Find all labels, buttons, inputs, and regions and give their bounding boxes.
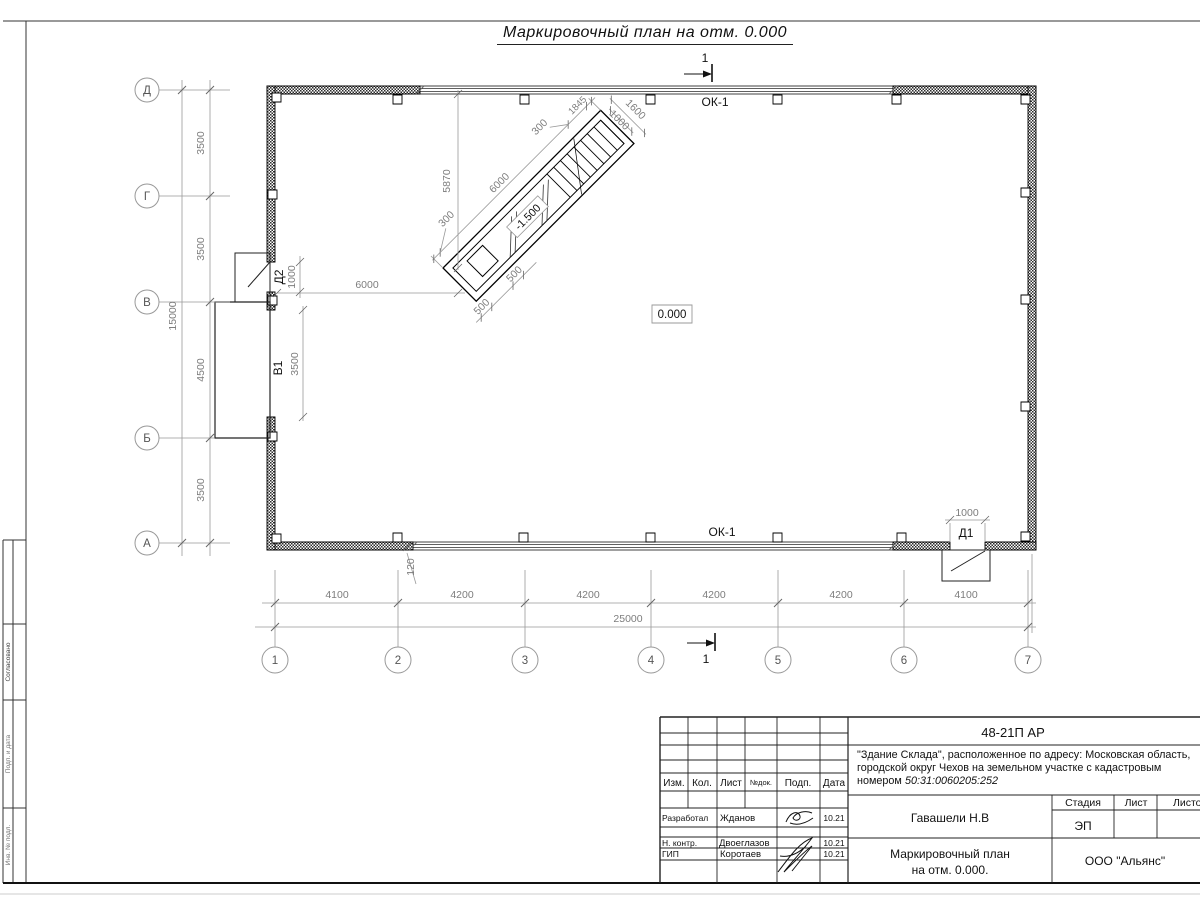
dim-left-4: 3500	[195, 478, 207, 502]
dim-d2-width: 1000	[286, 265, 298, 289]
window-label-bottom: ОК-1	[709, 525, 736, 539]
dim-left-total: 15000	[167, 301, 179, 330]
col-header-data: Дата	[823, 778, 846, 789]
col-header-podp: Подп.	[785, 778, 812, 789]
ramp-locating-dims	[273, 90, 465, 297]
porch-d2	[235, 253, 270, 302]
dim-ramp-from-wall: 5870	[441, 169, 453, 193]
row2-name: Двоеглазов	[719, 838, 770, 849]
left-axes	[135, 78, 230, 556]
row2-role: Н. контр.	[662, 838, 697, 848]
axis-label-d: Д	[143, 85, 151, 97]
door-label-d1: Д1	[959, 526, 974, 540]
titleblock-chief: Гавашели Н.В	[911, 811, 989, 825]
porch-d1	[942, 550, 990, 581]
axis-label-6: 6	[901, 655, 907, 667]
dim-ramp-end-top: 300	[529, 117, 550, 138]
axis-label-7: 7	[1025, 655, 1031, 667]
dim-left-1: 3500	[195, 131, 207, 155]
dim-v1-width: 3500	[289, 352, 301, 376]
door-label-d2: Д2	[272, 269, 286, 284]
frame-side-labels: Согласовано Подп. и дата Инв. № подл.	[5, 642, 12, 865]
row2-date: 10.21	[823, 838, 845, 848]
row3-name: Коротаев	[720, 849, 761, 860]
project-cadastral-number: 50:31:0060205:252	[905, 775, 998, 787]
axis-label-v: В	[143, 297, 151, 309]
dim-bottom-total: 25000	[613, 613, 642, 625]
elevation-value: 0.000	[658, 309, 687, 321]
dim-ramp-stair-len: 1845	[566, 94, 589, 117]
dim-bottom-1: 4100	[325, 589, 349, 601]
axis-label-4: 4	[648, 655, 655, 667]
plan-drawing: Согласовано Подп. и дата Инв. № подл.	[0, 0, 1200, 900]
row1-date: 10.21	[823, 813, 845, 823]
section-mark-bottom: 1	[687, 633, 715, 666]
window-label-top: ОК-1	[702, 95, 729, 109]
doc-name-line1: Маркировочный план	[890, 847, 1010, 861]
frame-label-podp-data: Подп. и дата	[5, 734, 12, 773]
axis-label-5: 5	[775, 655, 781, 667]
axis-label-g: Г	[144, 191, 151, 203]
col-header-izm: Изм.	[663, 778, 684, 789]
dim-d1-width: 1000	[955, 507, 979, 519]
dim-left-2: 3500	[195, 237, 207, 261]
section-number-bottom: 1	[703, 652, 710, 666]
frame-label-inv-podl: Инв. № подл.	[5, 825, 12, 866]
col-header-kol: Кол.	[692, 778, 712, 789]
frame-label-soglasovano: Согласовано	[5, 642, 12, 681]
dim-wall-step: 120	[405, 558, 417, 576]
row1-name: Жданов	[720, 813, 755, 824]
window-band-bottom	[413, 542, 893, 550]
dim-ramp-end-bottom: 300	[436, 209, 457, 230]
dim-bottom-4: 4200	[702, 589, 726, 601]
row3-role: ГИП	[662, 849, 679, 859]
drawing-title-text: Маркировочный план на отм. 0.000	[497, 24, 793, 45]
porch-v1	[215, 302, 270, 438]
window-band-top	[420, 86, 893, 94]
drawing-title: Маркировочный план на отм. 0.000	[430, 24, 860, 45]
section-mark-top: 1	[684, 51, 712, 82]
door-d1-leaf	[951, 551, 985, 571]
doc-name-line2: на отм. 0.000.	[912, 863, 989, 877]
dim-bottom-2: 4200	[450, 589, 474, 601]
project-desc-line1: "Здание Склада", расположенное по адресу…	[857, 749, 1190, 761]
dim-ramp-length: 6000	[487, 171, 512, 196]
dim-bottom-5: 4200	[829, 589, 853, 601]
door-d2-leaf	[248, 262, 270, 287]
dim-bottom-3: 4200	[576, 589, 600, 601]
axis-label-1: 1	[272, 655, 278, 667]
axis-label-b: Б	[143, 433, 151, 445]
project-desc-line2: городской округ Чехов на земельном участ…	[857, 762, 1161, 774]
axis-label-3: 3	[522, 655, 528, 667]
signature-row2	[778, 838, 812, 872]
section-number-top: 1	[702, 51, 709, 65]
gate-label-v1: В1	[271, 360, 285, 375]
row1-role: Разработал	[662, 813, 708, 823]
walls	[267, 86, 1036, 550]
columns	[268, 93, 1030, 543]
col-header-list: Лист	[720, 778, 742, 789]
axis-label-2: 2	[395, 655, 401, 667]
axis-label-a: А	[143, 538, 151, 550]
dim-ramp-from-left-wall: 6000	[355, 279, 379, 291]
col-header-ndok: №док.	[750, 778, 772, 787]
stage-value: ЭП	[1074, 819, 1091, 833]
project-desc-line3: номером	[857, 775, 902, 787]
dim-left-3: 4500	[195, 358, 207, 382]
drawing-sheet: Согласовано Подп. и дата Инв. № подл.	[0, 0, 1200, 900]
sheets-label: Листов	[1173, 797, 1200, 809]
stage-label: Стадия	[1065, 797, 1101, 809]
titleblock-doc-code: 48-21П АР	[981, 725, 1045, 740]
sheet-label: Лист	[1125, 797, 1148, 809]
row3-date: 10.21	[823, 849, 845, 859]
dim-bottom-6: 4100	[954, 589, 978, 601]
company-name: ООО "Альянс"	[1085, 854, 1165, 868]
signature-row1	[786, 812, 813, 825]
